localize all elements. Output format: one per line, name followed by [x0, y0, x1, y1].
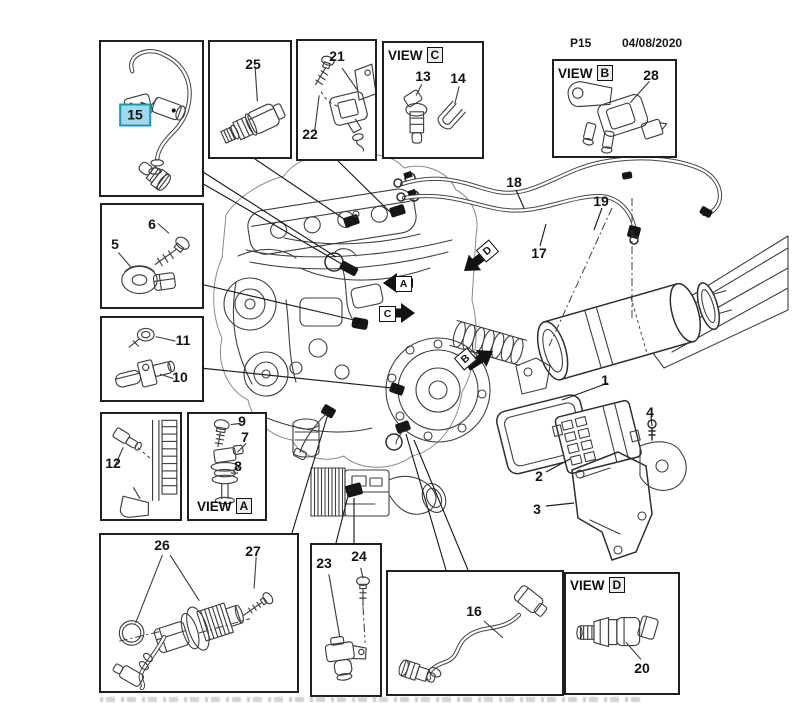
arrow-a-letter: A: [395, 276, 412, 292]
part-box-15: [99, 40, 204, 197]
oxygen-sensor-cable-art: [388, 572, 562, 693]
callout-10[interactable]: 10: [172, 369, 188, 385]
callout-28[interactable]: 28: [643, 67, 659, 83]
callout-1[interactable]: 1: [601, 372, 609, 388]
coolant-sensor-assembly-art: [101, 535, 297, 690]
page-code: P15: [570, 36, 591, 50]
callout-25[interactable]: 25: [245, 56, 261, 72]
callout-23[interactable]: 23: [316, 555, 332, 571]
view-word: VIEW: [558, 66, 593, 81]
view-c-label: VIEW C: [388, 47, 443, 63]
callout-24[interactable]: 24: [351, 548, 367, 564]
part-box-26-27: [99, 533, 299, 693]
callout-18[interactable]: 18: [506, 174, 522, 190]
callout-7[interactable]: 7: [241, 429, 249, 445]
view-direction-arrows: [383, 245, 498, 376]
callout-13[interactable]: 13: [415, 68, 431, 84]
callout-20[interactable]: 20: [634, 660, 650, 676]
callout-17[interactable]: 17: [531, 245, 547, 261]
callout-2[interactable]: 2: [535, 468, 543, 484]
part-box-10-11: [100, 316, 204, 402]
view-b-letter: B: [597, 65, 614, 81]
cropped-caption-text: [100, 697, 645, 702]
catalytic-converter-art: [532, 271, 737, 383]
crankshaft-sensor-art: [102, 318, 202, 399]
callout-21[interactable]: 21: [329, 48, 345, 64]
callout-9[interactable]: 9: [238, 413, 246, 429]
parts-diagram-page: P15 04/08/2020 VIEW C VIEW B VIEW A VIEW…: [0, 0, 793, 703]
callout-3[interactable]: 3: [533, 501, 541, 517]
oxygen-sensor-art: [101, 42, 202, 197]
callout-11[interactable]: 11: [176, 332, 191, 348]
view-word: VIEW: [197, 499, 232, 514]
view-word: VIEW: [570, 578, 605, 593]
view-d-letter: D: [609, 577, 626, 593]
callout-26[interactable]: 26: [154, 537, 170, 553]
view-b-label: VIEW B: [558, 65, 613, 81]
callout-4[interactable]: 4: [646, 404, 654, 420]
callout-16[interactable]: 16: [466, 603, 482, 619]
callout-27[interactable]: 27: [245, 543, 261, 559]
view-a-letter: A: [236, 498, 253, 514]
callout-14[interactable]: 14: [450, 70, 466, 86]
view-c-letter: C: [427, 47, 444, 63]
callout-8[interactable]: 8: [234, 458, 242, 474]
callout-12[interactable]: 12: [105, 455, 121, 471]
arrow-c-letter: C: [379, 306, 396, 322]
page-date: 04/08/2020: [622, 36, 682, 50]
ecm-assembly-art: [495, 393, 687, 560]
callout-22[interactable]: 22: [302, 126, 318, 142]
callout-5[interactable]: 5: [111, 236, 119, 252]
view-word: VIEW: [388, 48, 423, 63]
view-d-label: VIEW D: [570, 577, 625, 593]
callout-19[interactable]: 19: [593, 193, 609, 209]
part-box-16: [386, 570, 564, 696]
callout-15-selected[interactable]: 15: [119, 104, 151, 127]
callout-6[interactable]: 6: [148, 216, 156, 232]
view-a-label: VIEW A: [197, 498, 252, 514]
